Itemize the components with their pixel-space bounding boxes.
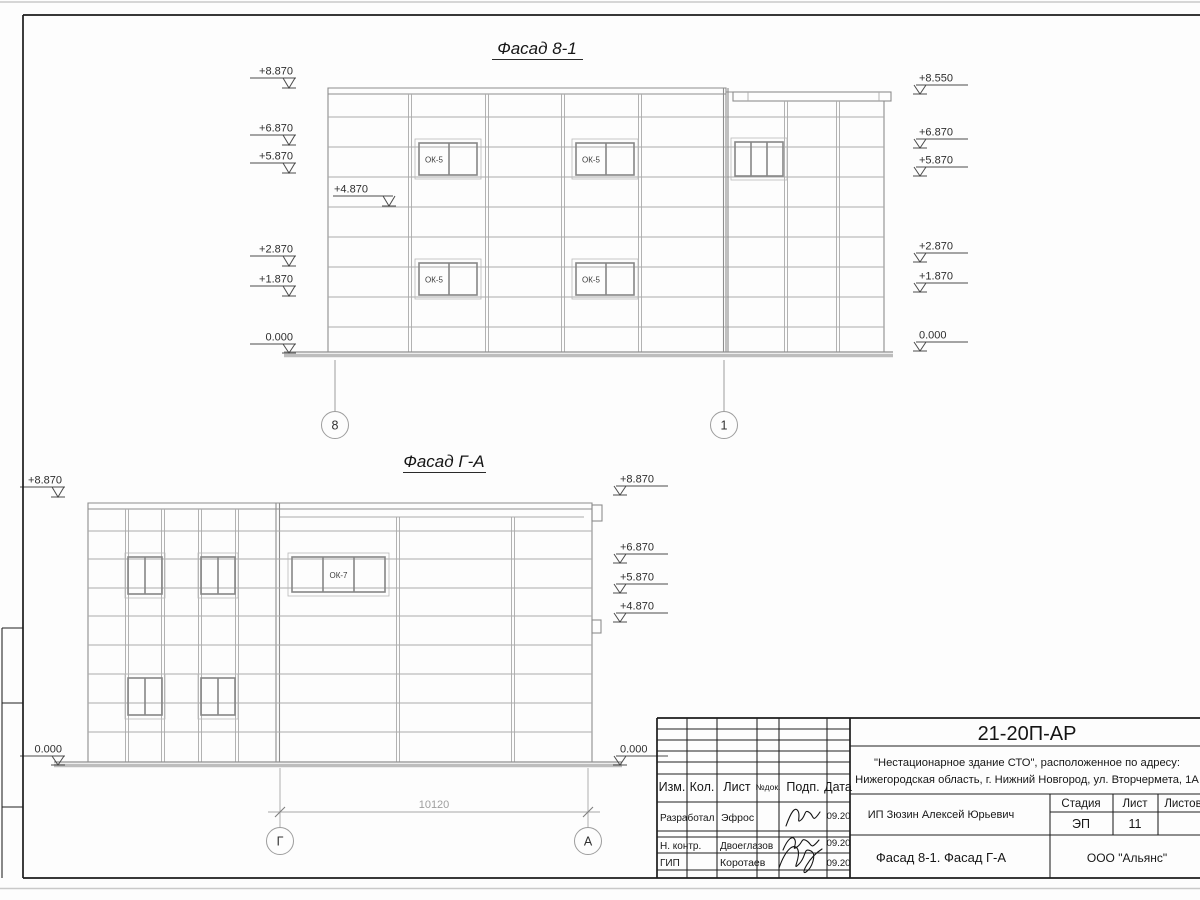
vertical-panel-joints	[409, 94, 840, 352]
elevation-marks-right: +8.870 +6.870 +5.870 +4.870 0.000	[613, 474, 668, 766]
elevation-arrow	[613, 584, 668, 593]
axis-label: Г	[277, 835, 284, 849]
elevation-arrow	[250, 163, 296, 173]
canopy-slab	[733, 92, 891, 101]
window-narrow-lower-1	[125, 674, 165, 719]
column-header-data: Дата	[824, 780, 852, 794]
elevation-label: +6.870	[919, 127, 953, 139]
elevation-arrow	[613, 554, 668, 563]
stage-value: ЭП	[1072, 817, 1090, 831]
signature	[786, 809, 820, 826]
axis-bubbles-facade1: 8 1	[322, 360, 738, 439]
window-narrow-upper-1	[125, 553, 165, 598]
vertical-panel-joints	[126, 509, 515, 762]
frame-border	[23, 15, 1200, 878]
row-role-razrabotal: Разработал	[660, 812, 715, 824]
elevation-mark-inner: +4.870	[333, 184, 396, 207]
column-header-kol: Кол.	[690, 780, 715, 794]
title-block: 21-20П-АР "Нестационарное здание СТО", р…	[657, 718, 1200, 878]
elevation-label: +8.870	[28, 475, 62, 487]
axis-bubbles-facade2: Г А	[267, 828, 602, 855]
elevation-label: +1.870	[259, 274, 293, 286]
row-date: 09.20	[827, 858, 851, 869]
elevation-label: +1.870	[919, 271, 953, 283]
document-number: 21-20П-АР	[978, 723, 1077, 745]
window-ok5-lower-1: ОК-5	[415, 259, 481, 299]
elevation-label: 0.000	[620, 744, 648, 756]
axis-label: 1	[721, 419, 728, 433]
elevation-label: 0.000	[919, 330, 947, 342]
row-role-nkontr: Н. контр.	[660, 841, 701, 852]
window-mark: ОК-5	[582, 156, 601, 165]
elevation-arrow	[20, 487, 65, 497]
elevation-label: 0.000	[265, 332, 293, 344]
sheet-number: 11	[1129, 817, 1142, 831]
elevation-arrow	[613, 613, 668, 622]
client-name: ИП Зюзин Алексей Юрьевич	[868, 809, 1015, 821]
elevation-label: +8.870	[620, 474, 654, 486]
row-name-korotaev: Коротаев	[720, 857, 766, 869]
window-mark: ОК-5	[425, 276, 444, 285]
window-small-3pane	[731, 138, 787, 180]
elevation-arrow	[913, 167, 968, 176]
elevation-arrow	[250, 78, 296, 88]
axis-label: 8	[332, 419, 339, 433]
window-ok5-upper-1: ОК-5	[415, 139, 481, 179]
elevation-label: +2.870	[919, 241, 953, 253]
edge-bracket	[592, 620, 601, 633]
elevation-arrow	[913, 253, 968, 262]
row-name-efros: Эфрос	[721, 812, 754, 824]
elevation-label: +4.870	[334, 184, 368, 196]
section-junction-line	[276, 503, 280, 762]
column-header-izm: Изм.	[659, 780, 686, 794]
facade-8-1-drawing: Фасад 8-1 ОК-5 ОК-5 ОК-5	[250, 39, 968, 439]
window-outline	[731, 138, 787, 180]
elevation-label: +5.870	[620, 572, 654, 584]
elevation-label: +5.870	[259, 151, 293, 163]
sheet-header: Лист	[1123, 798, 1149, 810]
canopy-side-tab	[592, 505, 602, 521]
elevation-arrow	[333, 196, 396, 206]
stage-header: Стадия	[1061, 798, 1100, 810]
facade-g-a-title: Фасад Г-А	[403, 452, 484, 471]
window-narrow-lower-2	[198, 674, 238, 719]
window-narrow-upper-2	[198, 553, 238, 598]
left-margin-cells	[2, 628, 23, 878]
elevation-label: +8.550	[919, 73, 953, 85]
column-header-list: Лист	[723, 780, 750, 794]
elevation-label: +6.870	[259, 123, 293, 135]
dimension-label: 10120	[419, 799, 450, 811]
window-ok5-lower-2: ОК-5	[572, 259, 638, 299]
window-mark: ОК-5	[582, 276, 601, 285]
window-mark: ОК-7	[330, 571, 349, 580]
axis-leader-lines	[335, 360, 724, 412]
elevation-arrow	[913, 283, 968, 292]
company-name: ООО "Альянс"	[1087, 851, 1167, 865]
signature	[779, 847, 822, 873]
horizontal-panel-joints	[88, 531, 592, 732]
sheets-header: Листов	[1164, 798, 1200, 810]
elevation-arrow	[250, 286, 296, 296]
elevation-arrow	[913, 85, 968, 94]
window-mark: ОК-5	[425, 156, 444, 165]
elevation-label: +4.870	[620, 601, 654, 613]
elevation-label: +5.870	[919, 155, 953, 167]
facade-g-a-outline	[88, 503, 592, 762]
column-header-podp: Подп.	[786, 780, 819, 794]
elevation-label: +2.870	[259, 244, 293, 256]
elevation-marks-right: +8.550 +6.870 +5.870 +2.870 +1.870 0.000	[913, 73, 968, 352]
elevation-arrow	[250, 256, 296, 266]
sheet-content-title: Фасад 8-1. Фасад Г-А	[876, 850, 1006, 865]
elevation-label: 0.000	[34, 744, 62, 756]
facade-g-a-drawing: Фасад Г-А	[20, 452, 668, 855]
signature	[783, 838, 819, 850]
architectural-drawing: Фасад 8-1 ОК-5 ОК-5 ОК-5	[0, 0, 1200, 900]
elevation-label: +8.870	[259, 66, 293, 78]
elevation-arrow	[250, 135, 296, 145]
elevation-arrow	[913, 139, 968, 148]
elevation-arrow	[613, 486, 668, 495]
elevation-label: +6.870	[620, 542, 654, 554]
column-header-ndok: №док.	[756, 782, 781, 792]
dimension-10120: 10120	[268, 768, 600, 828]
elevation-arrow	[913, 342, 968, 351]
elevation-arrow	[20, 756, 65, 765]
canopy-joints	[748, 92, 879, 101]
elevation-arrow	[613, 756, 668, 765]
extension-lines	[280, 768, 588, 828]
project-description-line1: "Нестационарное здание СТО", расположенн…	[874, 757, 1180, 769]
elevation-marks-left: +8.870 0.000	[20, 475, 65, 766]
drawing-sheet-page: Фасад 8-1 ОК-5 ОК-5 ОК-5	[0, 0, 1200, 900]
axis-label: А	[584, 835, 593, 849]
facade-8-1-title: Фасад 8-1	[497, 39, 577, 58]
window-ok5-upper-2: ОК-5	[572, 139, 638, 179]
row-date: 09.20	[827, 811, 851, 822]
row-role-gip: ГИП	[660, 858, 680, 869]
elevation-marks-left: +8.870 +6.870 +5.870 +2.870 +1.870 0.000	[250, 66, 296, 354]
project-description-line2: Нижегородская область, г. Нижний Новгоро…	[855, 774, 1199, 786]
title-block-columns	[687, 718, 827, 878]
sheet-frame	[2, 15, 1200, 878]
row-date: 09.20	[827, 838, 851, 849]
row-name-dvoeglazov: Двоеглазов	[720, 841, 773, 852]
